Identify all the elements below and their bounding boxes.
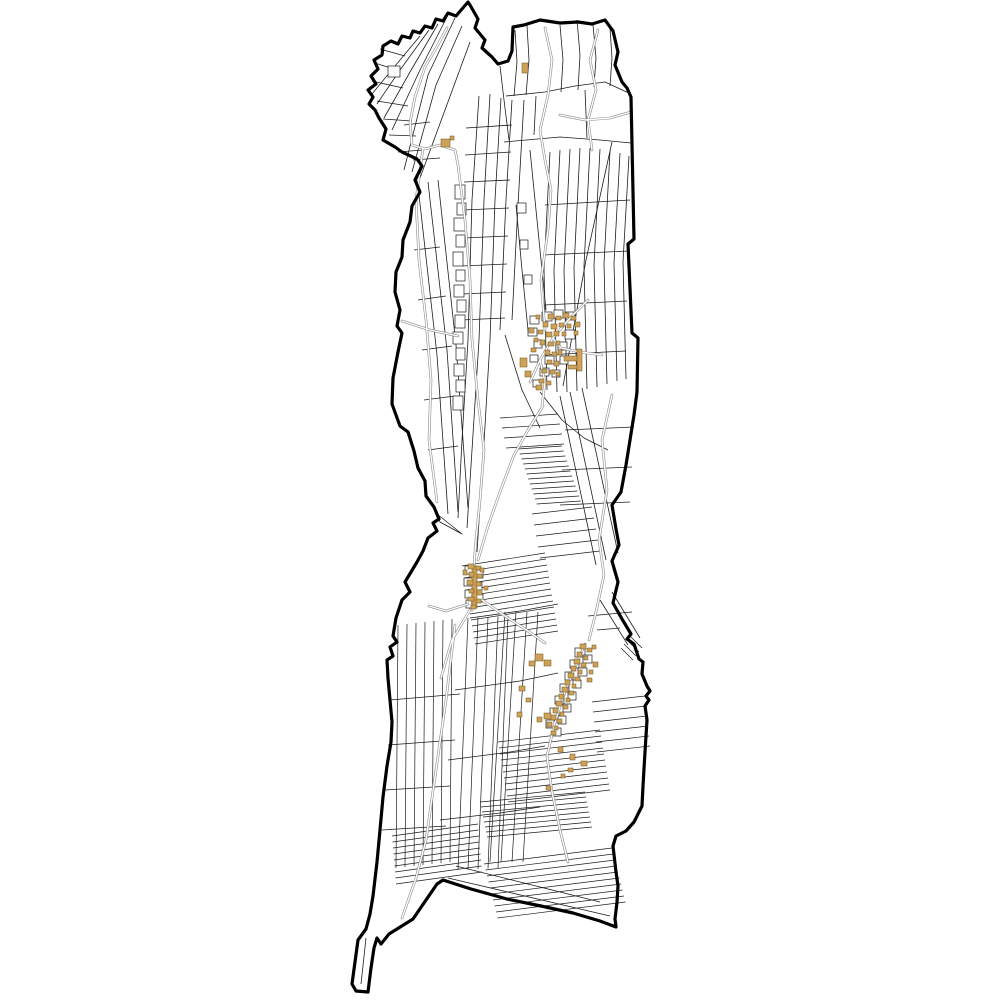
cadastral-map xyxy=(0,0,1000,1000)
map-canvas xyxy=(0,0,1000,1000)
